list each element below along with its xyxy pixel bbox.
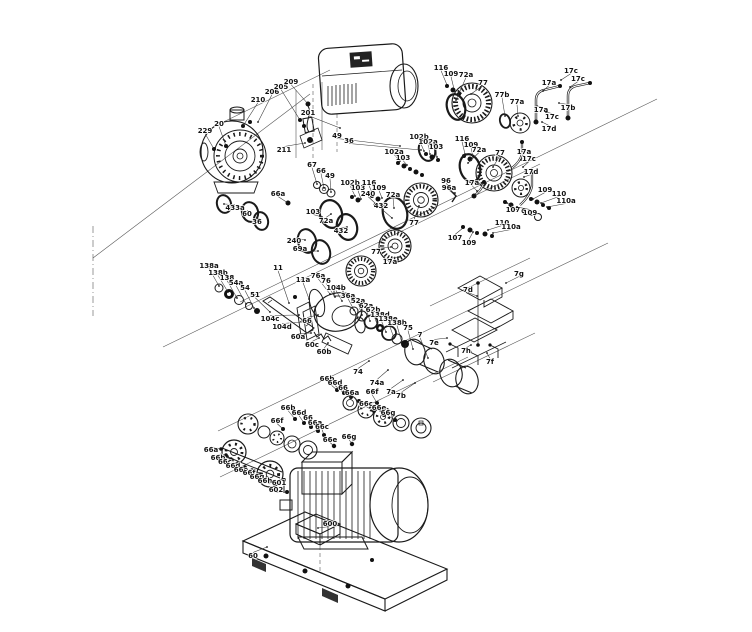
callout-arrow-tip [287,202,289,204]
part-callout: 17c [522,155,536,163]
callout-arrow-tip [492,166,494,168]
callout-leader [517,105,518,117]
drive-motor [280,452,428,549]
callout-arrow-tip [333,445,335,447]
callout-arrow-tip [436,156,438,158]
part-callout: 51 [250,291,260,299]
part-callout: 110a [556,197,576,205]
callout-arrow-tip [540,202,542,204]
part-callout: 66f [366,388,380,396]
callout-leader [291,85,308,105]
callout-arrow-tip [323,187,325,189]
part-callout: 17a [465,179,480,187]
callout-arrow-tip [414,382,416,384]
callout-arrow-tip [218,285,220,287]
part-callout: 7a [386,388,396,396]
callout-leader [303,283,309,300]
callout-arrow-tip [560,79,562,81]
part-callout: 7g [514,270,524,278]
part-callout: 72a [319,217,334,225]
chamber-disc [346,256,376,286]
callout-arrow-tip [393,207,395,209]
part-callout: 20 [214,120,224,128]
part-callout: 17b [561,104,576,112]
callout-arrow-tip [387,369,389,371]
callout-arrow-tip [351,443,353,445]
part-callout: 60a [291,333,306,341]
part-callout: 7h [461,347,471,355]
callout-arrow-tip [423,150,425,152]
part-callout: 109 [538,186,553,194]
part-callout: 66c [315,423,329,431]
callout-arrow-tip [341,300,343,302]
callout-leader [205,134,214,150]
callout-leader [414,206,419,220]
callout-arrow-tip [406,164,408,166]
part-callout: 66g [342,433,357,441]
callout-arrow-tip [429,153,431,155]
part-callout: 240 [287,237,302,245]
part-callout: 66e [323,436,338,444]
part-callout: 54 [240,284,250,292]
callout-arrow-tip [257,121,259,123]
callout-arrow-tip [317,314,319,316]
part-callout: 104d [272,323,292,331]
part-callout: 77 [371,248,381,256]
callout-arrow-tip [523,176,525,178]
motor-vents [328,83,356,106]
callout-arrow-tip [360,198,362,200]
part-callout: 7b [396,392,406,400]
callout-arrow-tip [454,192,456,194]
part-callout: 11a [296,276,311,284]
part-callout: 66f [271,417,285,425]
callout-arrow-tip [299,119,301,121]
part-callout: 240 [361,190,376,198]
callout-arrow-tip [220,448,222,450]
callout-arrow-tip [492,232,494,234]
callout-arrow-tip [316,183,318,185]
part-callout: 77 [409,219,419,227]
callout-arrow-tip [288,302,290,304]
callout-arrow-tip [377,326,379,328]
callout-arrow-tip [227,291,229,293]
part-callout: 66 [302,317,312,325]
callout-arrow-tip [453,88,455,90]
callout-arrow-tip [464,153,466,155]
callout-arrow-tip [242,125,244,127]
callout-arrow-tip [286,491,288,493]
part-callout: 66g [381,409,396,417]
callout-arrow-tip [467,162,469,164]
callout-arrow-tip [317,527,319,529]
chamber-disc [476,155,512,191]
callout-arrow-tip [368,360,370,362]
callout-arrow-tip [253,307,255,309]
callout-arrow-tip [317,250,319,252]
callout-arrow-tip [401,342,403,344]
callout-arrow-tip [569,86,571,88]
part-callout: 110a [501,223,521,231]
callout-arrow-tip [541,121,543,123]
callout-arrow-tip [517,115,519,117]
callout-arrow-tip [304,142,306,144]
callout-arrow-tip [446,337,448,339]
part-callout: 60 [248,552,258,560]
callout-leader [502,98,505,117]
callout-arrow-tip [298,314,300,316]
part-callout: 229 [198,127,213,135]
part-callout: 432 [374,202,389,210]
callout-arrow-tip [462,227,464,229]
chamber-disc [404,183,438,217]
part-callout: 60 [242,210,252,218]
callout-arrow-tip [398,256,400,258]
part-callout: 109 [444,70,459,78]
part-callout: 77a [510,98,525,106]
part-callout: 66a [345,389,360,397]
part-callout: 77 [495,149,505,157]
part-callout: 69a [293,245,308,253]
coupling-guards [446,276,513,368]
callout-arrow-tip [329,293,331,295]
part-callout: 7f [486,358,495,366]
callout-arrow-tip [532,198,534,200]
callout-arrow-tip [391,217,393,219]
callout-arrow-tip [318,337,320,339]
callout-arrow-tip [399,145,401,147]
callout-arrow-tip [455,99,457,101]
callout-arrow-tip [390,246,392,248]
part-callout: 7 [418,331,423,339]
part-callout: 103 [396,154,411,162]
part-callout: 210 [251,96,266,104]
callout-leader [451,77,454,90]
callout-arrow-tip [330,191,332,193]
mge-motor [318,43,418,115]
callout-arrow-tip [269,311,271,313]
callout-arrow-tip [303,422,305,424]
callout-arrow-tip [504,115,506,117]
callout-arrow-tip [476,190,478,192]
callout-arrow-tip [308,298,310,300]
callout-arrow-tip [472,231,474,233]
callout-arrow-tip [516,206,518,208]
callout-arrow-tip [282,428,284,430]
callout-arrow-tip [213,148,215,150]
part-callout: 75 [403,324,413,332]
callout-arrow-tip [546,206,548,208]
callout-leader [377,370,388,380]
part-callout: 49 [325,172,335,180]
guide-lines [93,70,657,572]
part-callout: 17c [545,113,559,121]
callout-arrow-tip [542,90,544,92]
part-callout: 107 [448,234,463,242]
callout-arrow-tip [307,103,309,105]
callout-arrow-tip [420,149,422,151]
part-callout: 600 [323,520,338,528]
callout-arrow-tip [470,344,472,346]
part-callout: 60b [317,348,332,356]
part-callout: 17c [564,67,578,75]
callout-arrow-tip [334,296,336,298]
part-callout: 36 [344,137,354,145]
callout-arrow-tip [486,352,488,354]
callout-arrow-tip [394,419,396,421]
callout-arrow-tip [393,337,395,339]
part-callout: 66a [271,190,286,198]
callout-arrow-tip [470,93,472,95]
pump-exploded-diagram: 22920210206205209201211433a603666a493667… [0,0,752,632]
callout-arrow-tip [506,202,508,204]
chamber-disc [452,83,492,123]
part-callout: 17d [524,168,539,176]
part-callout: 72a [472,146,487,154]
callout-arrow-tip [418,205,420,207]
callout-arrow-tip [245,303,247,305]
callout-arrow-tip [294,418,296,420]
part-callout: 104b [326,284,346,292]
part-callout: 66a [204,446,219,454]
callout-leader [401,383,415,393]
part-callout: 209 [284,78,299,86]
callout-arrow-tip [487,229,489,231]
callout-arrow-tip [266,546,268,548]
callout-arrow-tip [354,195,356,197]
part-callout: 77 [478,79,488,87]
callout-arrow-tip [402,379,404,381]
part-callout: 7e [429,339,439,347]
callout-arrow-tip [225,145,227,147]
part-callout: 432 [334,227,349,235]
part-callout: 17c [571,75,585,83]
hub-disc [512,179,530,197]
callout-arrow-tip [427,357,429,359]
exploded-diagram-page: 22920210206205209201211433a603666a493667… [0,0,752,632]
callout-arrow-tip [310,332,312,334]
callout-leader [330,179,331,193]
base-plate [243,512,447,611]
callout-arrow-tip [361,314,363,316]
callout-arrow-tip [385,331,387,333]
part-callout: 109 [462,239,477,247]
callout-arrow-tip [476,295,478,297]
part-callout: 77b [495,91,510,99]
callout-arrow-tip [505,282,507,284]
part-callout: 17a [542,79,557,87]
part-callout: 17d [542,125,557,133]
part-callout: 211 [277,146,292,154]
motor-display [350,51,373,67]
part-callout: 36 [252,218,262,226]
callout-arrow-tip [412,348,414,350]
callout-arrow-tip [330,213,332,215]
part-callout: 602 [269,486,284,494]
callout-leader [281,90,300,121]
part-callout: 96a [442,184,457,192]
callout-arrow-tip [339,127,341,129]
callout-arrow-tip [369,320,371,322]
part-callout: 74 [353,368,363,376]
part-callout: 17a [383,258,398,266]
callout-arrow-tip [446,84,448,86]
callout-arrow-tip [304,239,306,241]
callout-arrow-tip [327,342,329,344]
part-callout: 74a [370,379,385,387]
part-callout: 103 [429,143,444,151]
callout-arrow-tip [350,397,352,399]
part-callout: 49 [332,132,342,140]
callout-arrow-tip [353,309,355,311]
part-callout: 72a [459,71,474,79]
part-callout: 72a [386,191,401,199]
part-callout: 103 [306,208,321,216]
callout-arrow-tip [381,197,383,199]
part-callout: 7d [463,286,473,294]
part-callout: 109 [523,209,538,217]
part-callout: 66h [258,477,273,485]
callout-arrow-tip [236,297,238,299]
part-callout: 104c [261,315,280,323]
chamber-disc [379,230,411,262]
part-callout: 11 [273,264,283,272]
hub-disc [510,113,530,133]
part-callout: 201 [301,109,316,117]
